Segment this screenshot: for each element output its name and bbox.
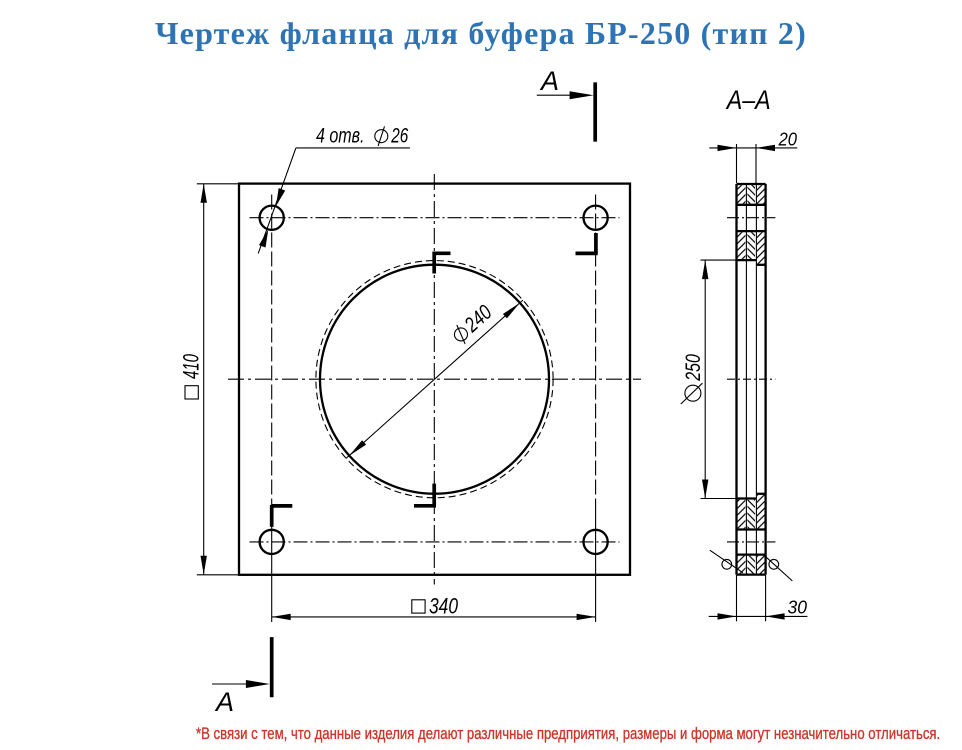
svg-text:26: 26 [391, 125, 409, 148]
svg-text:30: 30 [788, 596, 808, 617]
svg-text:A: A [539, 66, 559, 96]
svg-text:A: A [214, 687, 234, 717]
svg-text:250: 250 [682, 354, 705, 381]
svg-text:410: 410 [179, 353, 204, 379]
svg-text:4 отв.: 4 отв. [316, 125, 365, 148]
svg-text:240: 240 [460, 301, 497, 338]
svg-text:A–A: A–A [725, 85, 771, 115]
svg-text:340: 340 [429, 593, 459, 618]
svg-text:20: 20 [778, 128, 798, 149]
